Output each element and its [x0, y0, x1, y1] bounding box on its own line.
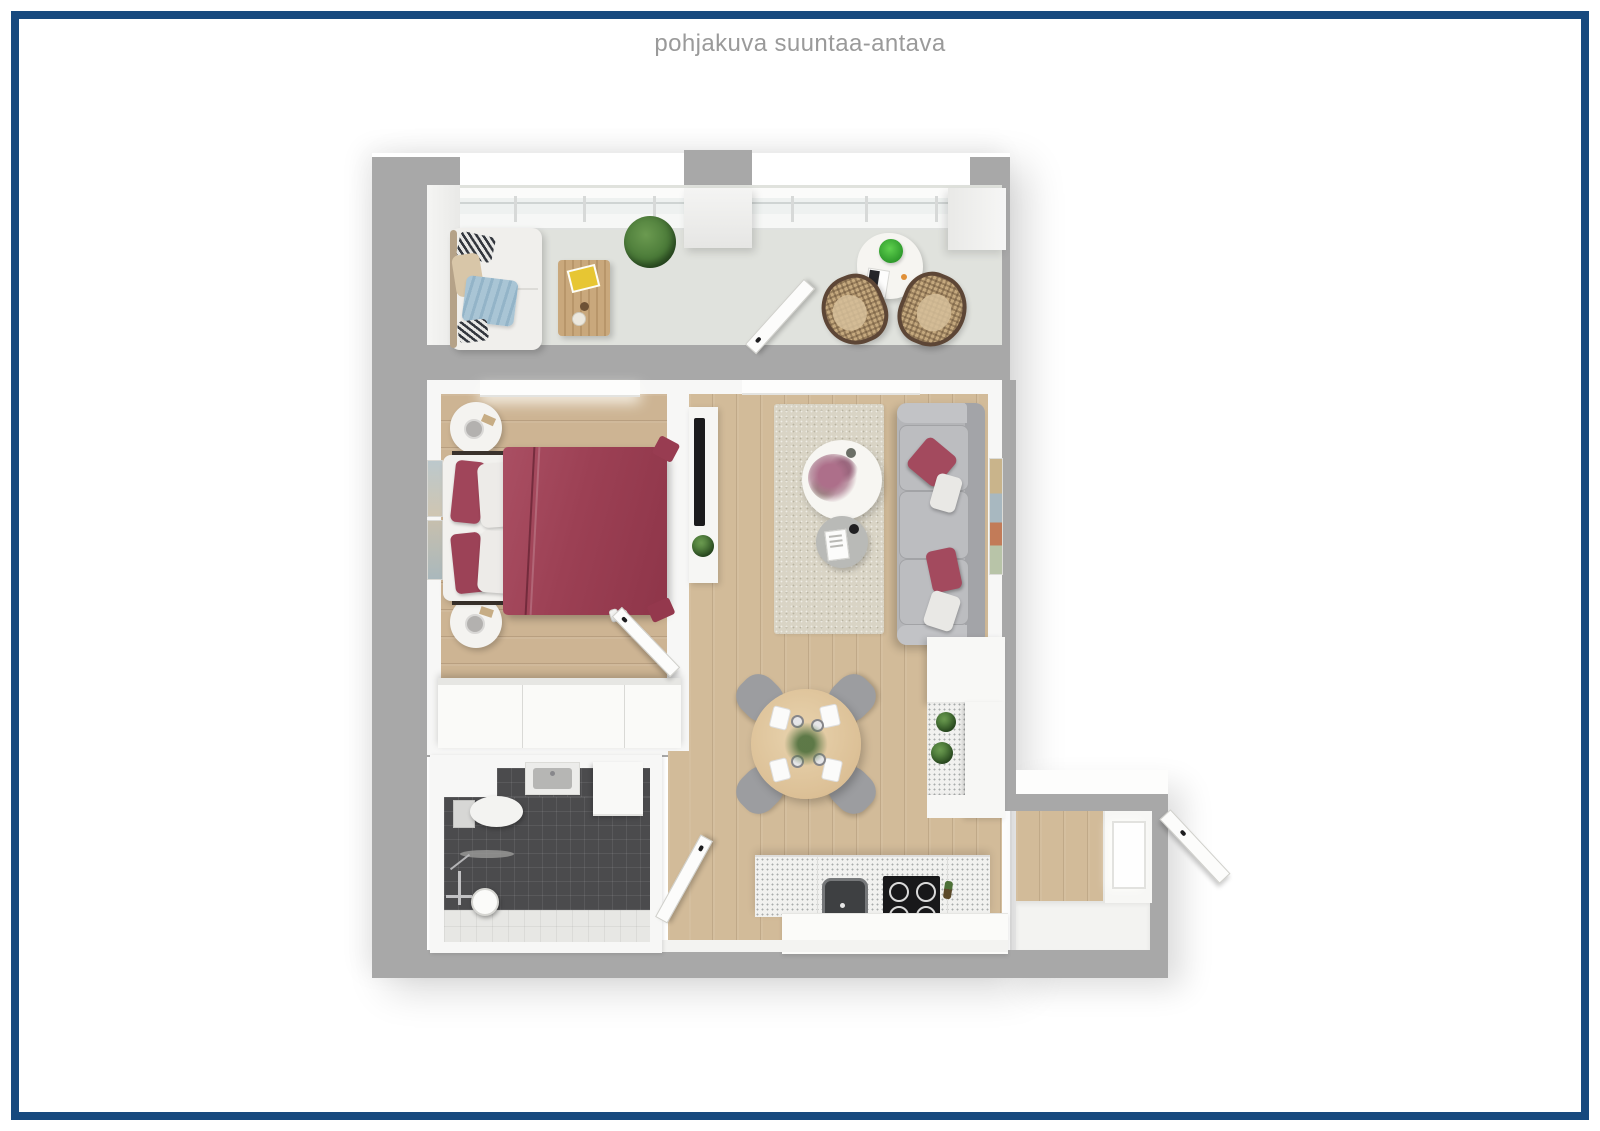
- toilet-bowl: [470, 796, 523, 827]
- burner: [889, 882, 909, 902]
- cup: [580, 302, 589, 311]
- side-table: [816, 516, 868, 568]
- living-artwork: [989, 458, 1003, 575]
- bathroom-door-handle: [698, 845, 704, 852]
- kitchen-floor-strip: [657, 940, 1008, 952]
- railing-post: [935, 196, 938, 222]
- toilet: [453, 794, 523, 828]
- wardrobe-divider: [624, 685, 625, 748]
- hall-floor: [668, 751, 689, 950]
- page: pohjakuva suuntaa-antava: [0, 0, 1600, 1131]
- balcony-sofa: [450, 228, 542, 350]
- dining-table: [751, 689, 861, 799]
- magazine-lines: [829, 534, 842, 538]
- cooktop: [883, 876, 940, 917]
- art-frame: [427, 460, 443, 517]
- wall-balcony-pillar: [684, 150, 752, 188]
- bathroom-washer-counter: [593, 762, 643, 816]
- wall-entry-top: [1016, 794, 1168, 811]
- balcony-pillar-base: [684, 188, 752, 248]
- railing-post: [791, 196, 794, 222]
- coffee-table: [802, 440, 882, 520]
- tv-stand-plant: [692, 535, 714, 557]
- bedroom-window: [480, 380, 640, 397]
- tv-screen: [694, 418, 705, 526]
- wall-separator-band: [372, 345, 1010, 380]
- counter-seam: [817, 857, 818, 917]
- wardrobe: [438, 678, 681, 748]
- kitchen-counter-column: [927, 702, 965, 795]
- railing-post: [583, 196, 586, 222]
- entry-window-glass: [1112, 821, 1146, 889]
- vase-bird: [846, 448, 856, 458]
- balcony-plant: [624, 216, 676, 268]
- table-lamp-black: [849, 524, 859, 534]
- living-sofa: [897, 403, 985, 645]
- sink-drain: [840, 903, 845, 908]
- bed: [443, 445, 670, 617]
- wall-left: [372, 157, 427, 955]
- wardrobe-divider: [522, 685, 523, 748]
- floor-plan: [372, 145, 1232, 978]
- bedroom-door-handle: [621, 616, 628, 623]
- shower-bar: [446, 895, 472, 898]
- balcony-right-column: [948, 188, 1006, 250]
- kitchen-cabinet-lower: [965, 702, 1005, 818]
- side-table-magazine: [824, 529, 849, 561]
- railing-glass-line: [460, 202, 684, 204]
- nightstand-lamp: [465, 614, 485, 634]
- shower-set: [442, 855, 502, 915]
- entry-floor-white: [1016, 901, 1150, 950]
- book-yellow: [567, 264, 601, 293]
- nightstand-lamp: [464, 419, 484, 439]
- entry-window-wall: [1103, 811, 1152, 903]
- wardrobe-top-edge: [438, 678, 681, 685]
- flower-bouquet: [808, 454, 860, 502]
- living-window: [742, 380, 920, 395]
- sink-faucet: [550, 771, 555, 776]
- wall-top-left-block: [379, 157, 460, 188]
- side-table-plant: [879, 239, 903, 263]
- bed-duvet-red: [503, 447, 667, 615]
- bedroom-artwork: [427, 460, 441, 578]
- entry-roof-white: [1016, 770, 1168, 794]
- saucer: [572, 312, 586, 326]
- chair-cushion: [911, 289, 957, 337]
- shower-head: [471, 888, 499, 916]
- kitchen-counter: [755, 855, 990, 917]
- balcony-pillow-patterned: [457, 318, 489, 343]
- counter-plant: [931, 742, 953, 764]
- kitchen-cabinet-base: [927, 795, 965, 818]
- page-title: pohjakuva suuntaa-antava: [0, 30, 1600, 58]
- railing-post: [514, 196, 517, 222]
- counter-plant: [936, 712, 956, 732]
- burner: [916, 882, 936, 902]
- front-door-handle: [1180, 829, 1187, 836]
- balcony-coffee-table: [558, 260, 610, 336]
- kitchen-cabinet-upper: [927, 637, 1005, 703]
- front-door: [1160, 809, 1231, 884]
- orange-dot: [901, 274, 907, 280]
- tv-stand: [689, 407, 718, 583]
- wall-bottom: [372, 950, 1168, 978]
- dining-centerpiece: [784, 722, 828, 766]
- kitchen-herb-plant: [943, 881, 953, 900]
- railing-post: [865, 196, 868, 222]
- balcony-door-handle: [755, 336, 762, 343]
- balcony-railing-right: [752, 188, 970, 230]
- sofa-armrest: [897, 403, 967, 423]
- place-setting: [769, 705, 792, 731]
- shower-hose: [450, 854, 470, 870]
- place-setting: [769, 757, 792, 783]
- chair-cushion: [827, 290, 872, 336]
- bathroom-sink: [525, 762, 580, 795]
- art-frame: [427, 520, 443, 580]
- shower-rail: [458, 871, 461, 905]
